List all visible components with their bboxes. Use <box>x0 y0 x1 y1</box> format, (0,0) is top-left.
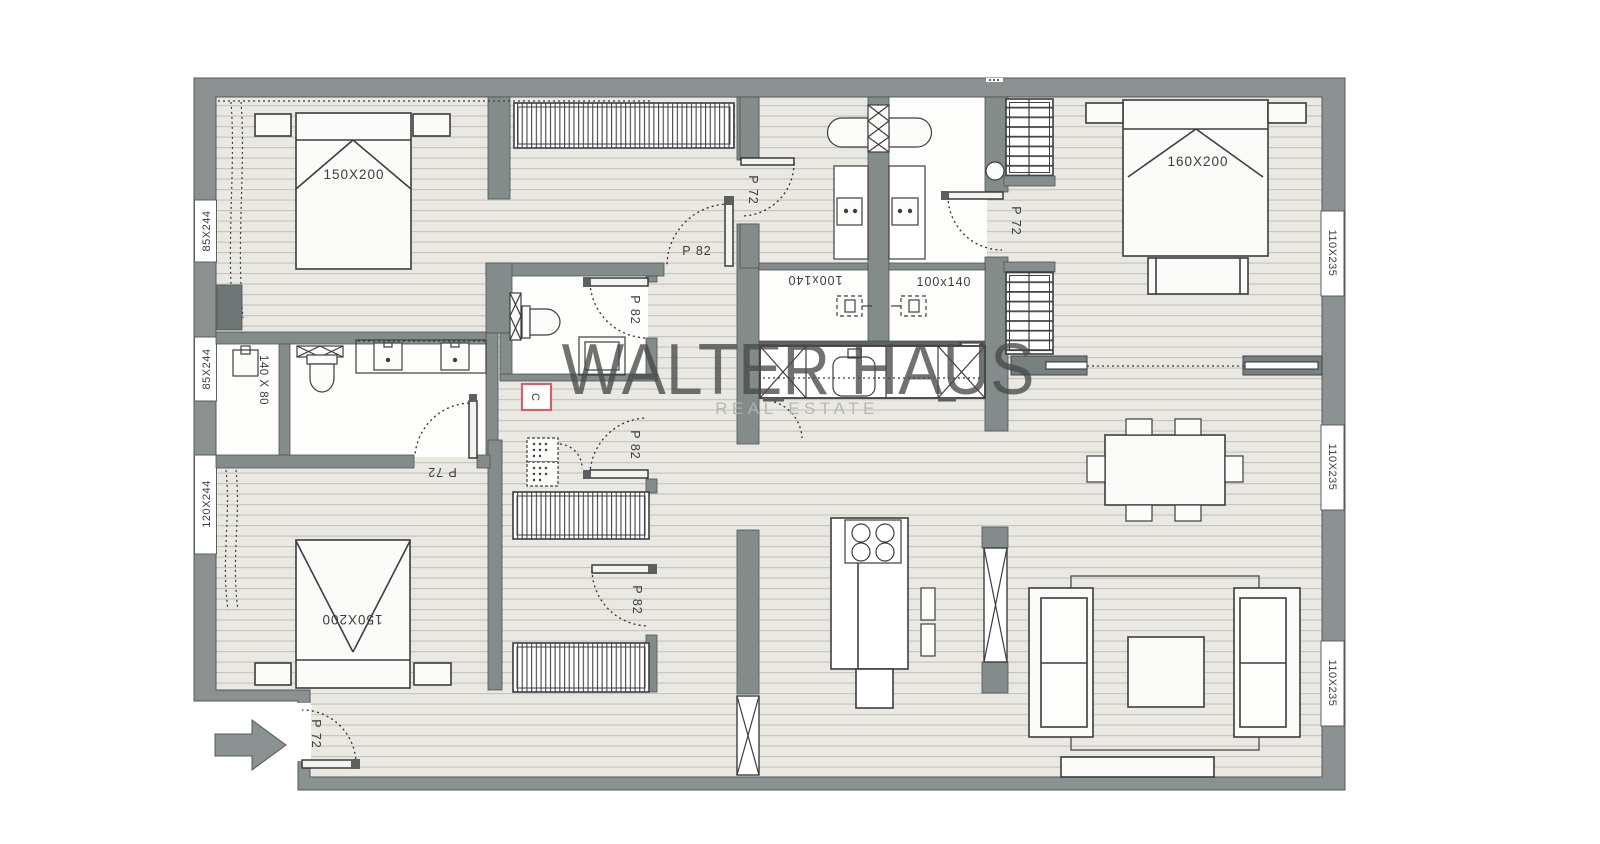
svg-text:150X200: 150X200 <box>321 612 382 627</box>
svg-text:P 82: P 82 <box>682 244 712 258</box>
svg-text:85X244: 85X244 <box>201 211 213 252</box>
svg-text:REAL ESTATE: REAL ESTATE <box>715 399 879 418</box>
svg-text:140 X 80: 140 X 80 <box>257 355 269 405</box>
svg-text:P 72: P 72 <box>1009 206 1023 236</box>
svg-text:P 72: P 72 <box>427 465 457 479</box>
svg-text:100x140: 100x140 <box>917 275 972 289</box>
svg-text:WALTER HAUS: WALTER HAUS <box>562 328 1035 409</box>
svg-text:110X235: 110X235 <box>1326 444 1338 491</box>
svg-text:P 72: P 72 <box>309 719 323 749</box>
svg-text:120X244: 120X244 <box>201 480 213 528</box>
svg-text:P 72: P 72 <box>746 175 760 205</box>
svg-text:P 82: P 82 <box>628 295 642 325</box>
svg-text:C: C <box>529 393 541 401</box>
svg-text:150X200: 150X200 <box>323 167 384 182</box>
svg-text:P 82: P 82 <box>628 430 642 460</box>
svg-text:85X244: 85X244 <box>201 349 213 390</box>
svg-text:P 82: P 82 <box>630 585 644 615</box>
svg-text:110X235: 110X235 <box>1326 230 1338 277</box>
svg-text:160X200: 160X200 <box>1167 154 1228 169</box>
svg-text:100x140: 100x140 <box>788 273 843 287</box>
svg-text:110X235: 110X235 <box>1326 660 1338 707</box>
